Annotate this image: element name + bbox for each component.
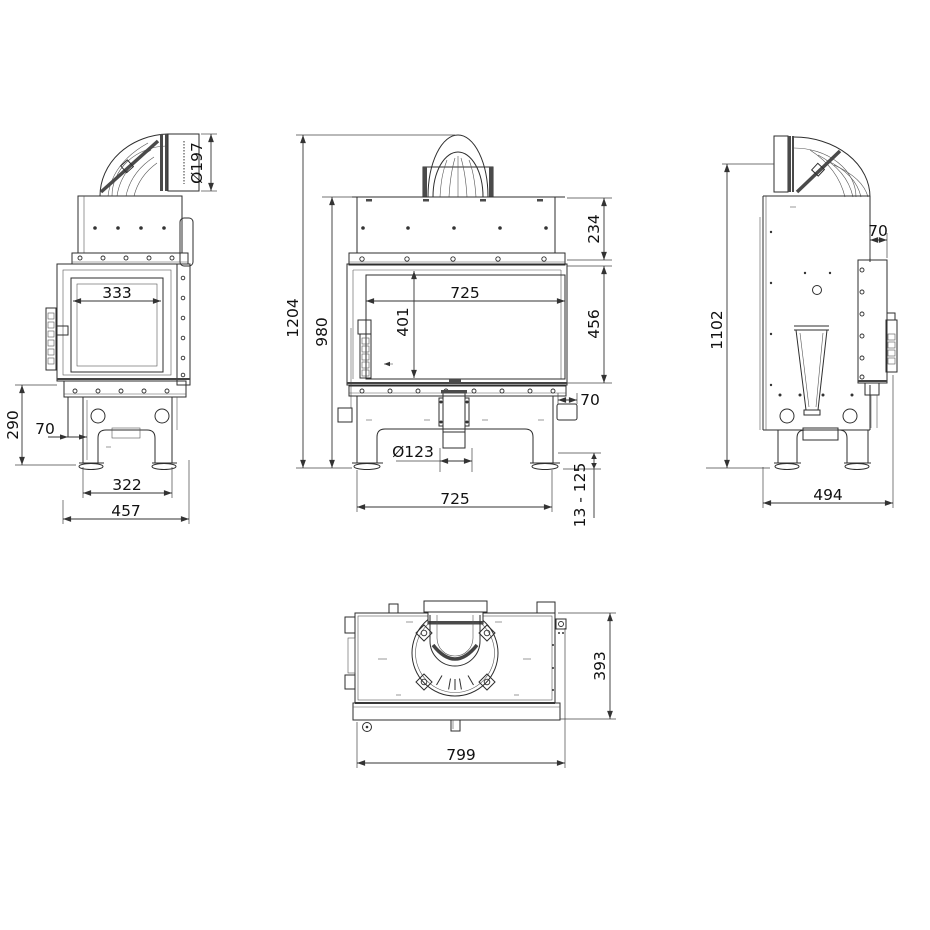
drawing-canvas: Ø197 333	[0, 0, 930, 930]
right-side-view: 1102 70 494	[706, 136, 897, 508]
dim-label-air-inlet-diameter: Ø123	[392, 443, 434, 461]
dim-label-top-depth: 393	[591, 651, 609, 681]
dim-label-leg-spacing: 322	[112, 476, 142, 494]
dim-label-front-offset: 70	[35, 420, 55, 438]
dim-label-glass-width: 725	[450, 284, 480, 302]
front-view: 725 401 Ø123	[284, 135, 612, 527]
dim-label-side-overall-depth: 457	[111, 502, 141, 520]
dim-label-rear-spigot-depth-side: 70	[868, 222, 888, 240]
dim-label-flue-axis-height: 1102	[708, 310, 726, 349]
dim-label-top-width: 799	[446, 746, 476, 764]
dim-label-base-width: 725	[440, 490, 470, 508]
dim-label-base-height: 290	[4, 410, 22, 440]
dim-label-hood-height: 234	[585, 214, 603, 244]
dim-label-foot-adjust-range: 13 - 125	[571, 463, 589, 528]
dim-label-overall-height: 1204	[284, 298, 302, 337]
dim-label-glass-height: 401	[394, 307, 412, 337]
left-side-view: Ø197 333	[4, 134, 217, 524]
dim-label-body-height: 980	[313, 317, 331, 347]
technical-drawing: Ø197 333	[0, 0, 930, 930]
dim-label-door-height: 456	[585, 309, 603, 339]
dim-label-flue-diameter: Ø197	[188, 142, 206, 184]
dim-label-rear-spigot-depth-front: 70	[580, 391, 600, 409]
top-view: 393 799	[345, 601, 616, 768]
dim-label-side-glass-width: 333	[102, 284, 132, 302]
dim-label-overall-depth: 494	[813, 486, 843, 504]
